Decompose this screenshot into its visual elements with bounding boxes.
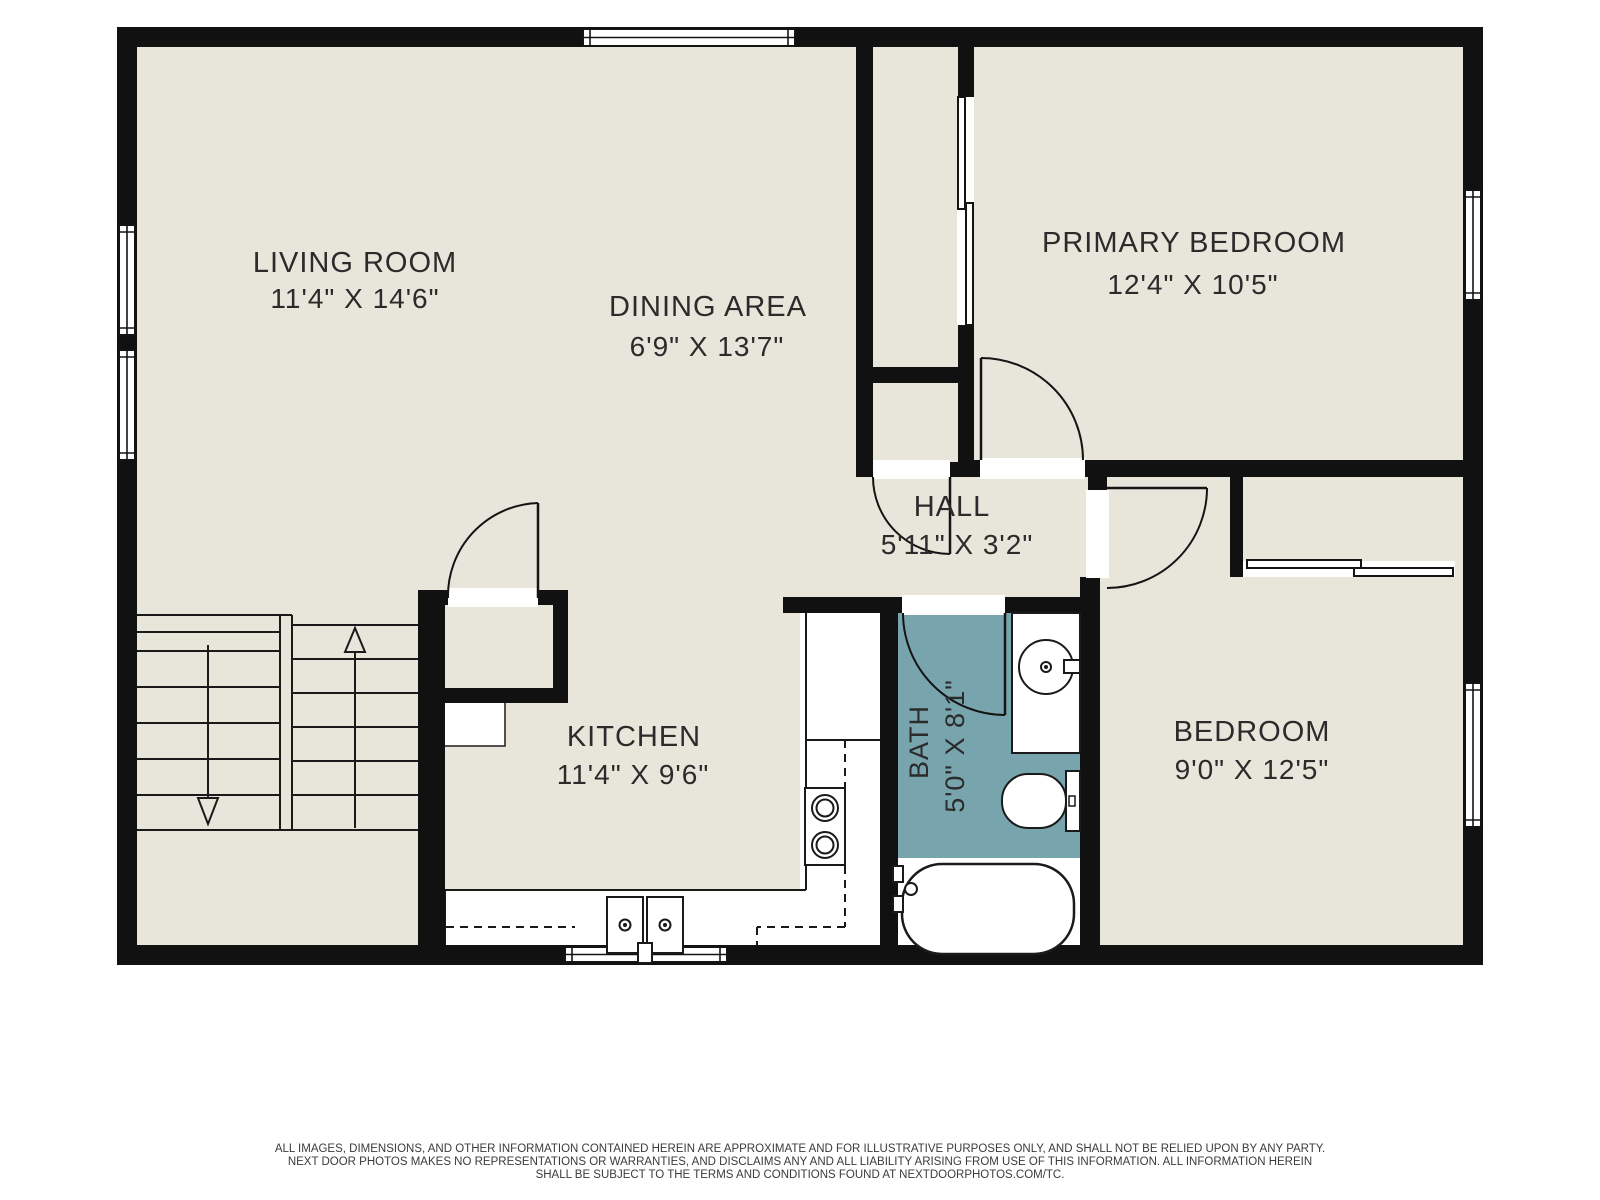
- stove: [805, 788, 845, 865]
- dining-area-name: DINING AREA: [609, 291, 807, 323]
- window-right-primary-bedroom: [1465, 190, 1481, 300]
- primary-bedroom-name: PRIMARY BEDROOM: [1042, 227, 1346, 259]
- dining-area-dims: 6'9" X 13'7": [630, 331, 785, 362]
- window-top: [583, 29, 795, 46]
- bedroom-dims: 9'0" X 12'5": [1175, 754, 1330, 785]
- disclaimer-line-3: SHALL BE SUBJECT TO THE TERMS AND CONDIT…: [536, 1169, 1065, 1181]
- disclaimer-line-1: ALL IMAGES, DIMENSIONS, AND OTHER INFORM…: [275, 1143, 1325, 1155]
- kitchen-name: KITCHEN: [567, 721, 701, 753]
- floor-plan-page: LIVING ROOM 11'4" X 14'6" DINING AREA 6'…: [0, 0, 1600, 1200]
- living-room-name: LIVING ROOM: [253, 247, 457, 279]
- hall-dims: 5'11" X 3'2": [881, 529, 1034, 560]
- disclaimer-line-2: NEXT DOOR PHOTOS MAKES NO REPRESENTATION…: [288, 1156, 1312, 1168]
- hall-name: HALL: [914, 491, 991, 523]
- window-left-upper: [119, 225, 135, 335]
- bath-dims: 5'0" X 8'1": [940, 679, 970, 813]
- toilet: [1002, 771, 1080, 831]
- floor-plan: LIVING ROOM 11'4" X 14'6" DINING AREA 6'…: [0, 0, 1600, 1200]
- kitchen-dims: 11'4" X 9'6": [557, 759, 710, 790]
- bath-name: BATH: [904, 705, 934, 779]
- window-right-bedroom: [1465, 683, 1481, 827]
- primary-closet-sliding-doors: [957, 97, 974, 325]
- bedroom-closet-sliding-doors: [1243, 560, 1455, 577]
- window-left-lower: [119, 350, 135, 460]
- bedroom-name: BEDROOM: [1174, 716, 1331, 748]
- living-room-dims: 11'4" X 14'6": [270, 283, 439, 314]
- primary-bedroom-dims: 12'4" X 10'5": [1107, 269, 1278, 300]
- bathtub: [893, 864, 1074, 954]
